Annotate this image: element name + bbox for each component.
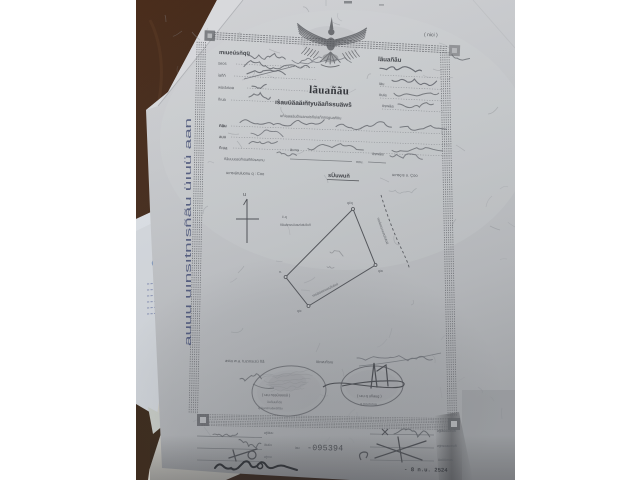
svg-text:auuu uınsıtnısñãu üıuü aan: auuu uınsıtnısñãu üıuü aan — [183, 118, 194, 346]
